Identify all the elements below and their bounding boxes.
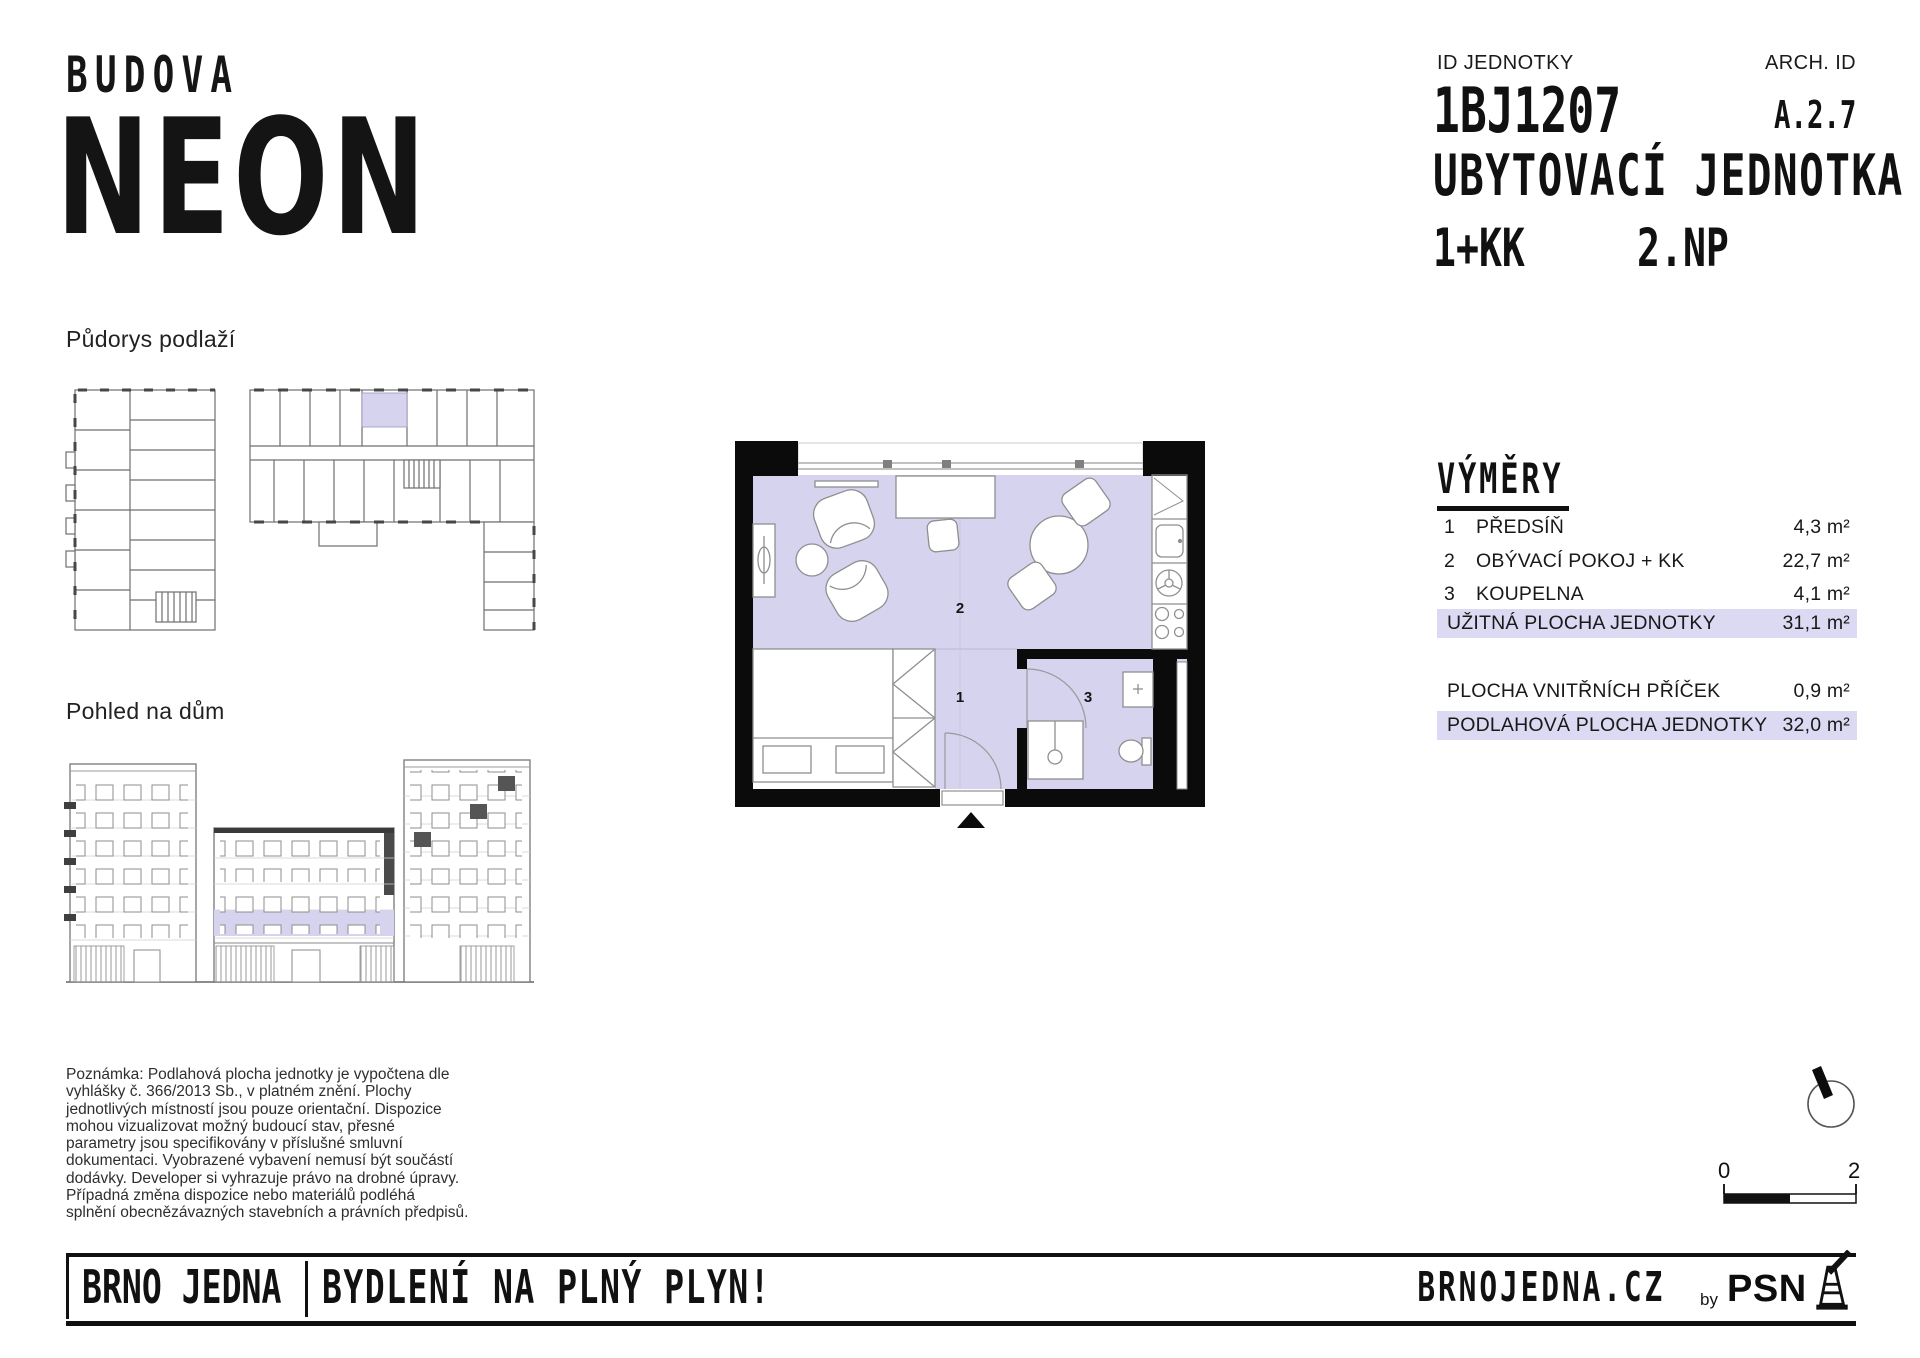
room-number: 2	[1437, 550, 1476, 573]
building-view-label: Pohled na dům	[66, 698, 225, 725]
partitions-area-value: 0,9 m²	[1794, 680, 1857, 703]
entrance-door	[942, 791, 1003, 805]
footer-bottom-rule	[66, 1321, 1856, 1326]
unit-type-title: UBYTOVACÍ JEDNOTKA	[1433, 148, 1904, 205]
building-logo-name: NEON	[56, 98, 429, 258]
room-name: OBÝVACÍ POKOJ + KK	[1476, 550, 1685, 573]
floor-area-row: PODLAHOVÁ PLOCHA JEDNOTKY 32,0 m²	[1437, 711, 1857, 740]
footer-separator-bar	[305, 1261, 308, 1317]
room-label-living: 2	[956, 600, 964, 617]
room-number: 3	[1437, 583, 1476, 606]
north-compass-icon	[1800, 1058, 1870, 1133]
room-area-value: 4,3 m²	[1794, 516, 1857, 539]
usable-area-value: 31,1 m²	[1782, 612, 1857, 635]
window-mullions	[883, 460, 1084, 468]
usable-area-label: UŽITNÁ PLOCHA JEDNOTKY	[1437, 612, 1716, 635]
legal-note: Poznámka: Podlahová plocha jednotky je v…	[66, 1066, 536, 1222]
area-row-koupelna: 3 KOUPELNA 4,1 m²	[1437, 583, 1857, 606]
unit-id-value: 1BJ1207	[1433, 80, 1621, 142]
room-name: PŘEDSÍŇ	[1476, 516, 1564, 539]
room-area-value: 4,1 m²	[1794, 583, 1857, 606]
unit-id-label: ID JEDNOTKY	[1437, 52, 1574, 75]
areas-title-underline	[1437, 506, 1569, 511]
footer-by-label: by	[1700, 1290, 1718, 1310]
footer-website[interactable]: BRNOJEDNA.CZ	[1417, 1267, 1665, 1308]
room-area-value: 22,7 m²	[1782, 550, 1857, 573]
scale-start-label: 0	[1718, 1158, 1730, 1183]
room-label-bathroom: 3	[1084, 689, 1092, 706]
floor-area-value: 32,0 m²	[1782, 714, 1857, 737]
area-row-predsin: 1 PŘEDSÍŇ 4,3 m²	[1437, 516, 1857, 539]
shaft	[1177, 662, 1187, 789]
room-label-hall: 1	[956, 689, 964, 706]
footer-top-rule	[66, 1253, 1856, 1257]
psn-crane-icon	[1806, 1250, 1858, 1310]
footer-slogan: BYDLENÍ NA PLNÝ PLYN!	[322, 1264, 771, 1310]
partitions-area-label: PLOCHA VNITŘNÍCH PŘÍČEK	[1437, 680, 1720, 703]
arch-id-label: ARCH. ID	[1765, 52, 1856, 75]
footer-left-bar	[66, 1257, 69, 1319]
floorplan-overview-label: Půdorys podlaží	[66, 326, 235, 353]
room-name: KOUPELNA	[1476, 583, 1584, 606]
scale-bar: 0 2	[1716, 1148, 1866, 1206]
highlighted-unit-on-floorplan	[362, 393, 407, 427]
area-row-obyvaci: 2 OBÝVACÍ POKOJ + KK 22,7 m²	[1437, 550, 1857, 573]
partitions-area-row: PLOCHA VNITŘNÍCH PŘÍČEK 0,9 m²	[1437, 680, 1857, 703]
unit-disposition: 1+KK	[1433, 222, 1525, 275]
room-number: 1	[1437, 516, 1476, 539]
psn-logo-text: PSN	[1727, 1268, 1807, 1311]
unit-floor-plan: 2 1 3	[735, 441, 1205, 833]
areas-title: VÝMĚRY	[1437, 458, 1564, 500]
arch-id-value: A.2.7	[1774, 96, 1856, 134]
building-elevation-view	[64, 750, 536, 990]
footer-brand: BRNO JEDNA	[82, 1264, 281, 1310]
usable-area-row: UŽITNÁ PLOCHA JEDNOTKY 31,1 m²	[1437, 609, 1857, 638]
floor-area-label: PODLAHOVÁ PLOCHA JEDNOTKY	[1437, 714, 1767, 737]
floor-level-overview-plan	[64, 382, 536, 640]
scale-end-label: 2	[1848, 1158, 1860, 1183]
entrance-arrow-icon	[957, 812, 985, 828]
unit-floor: 2.NP	[1637, 222, 1729, 275]
unit-datasheet-page: BUDOVA NEON ID JEDNOTKY ARCH. ID 1BJ1207…	[0, 0, 1920, 1358]
